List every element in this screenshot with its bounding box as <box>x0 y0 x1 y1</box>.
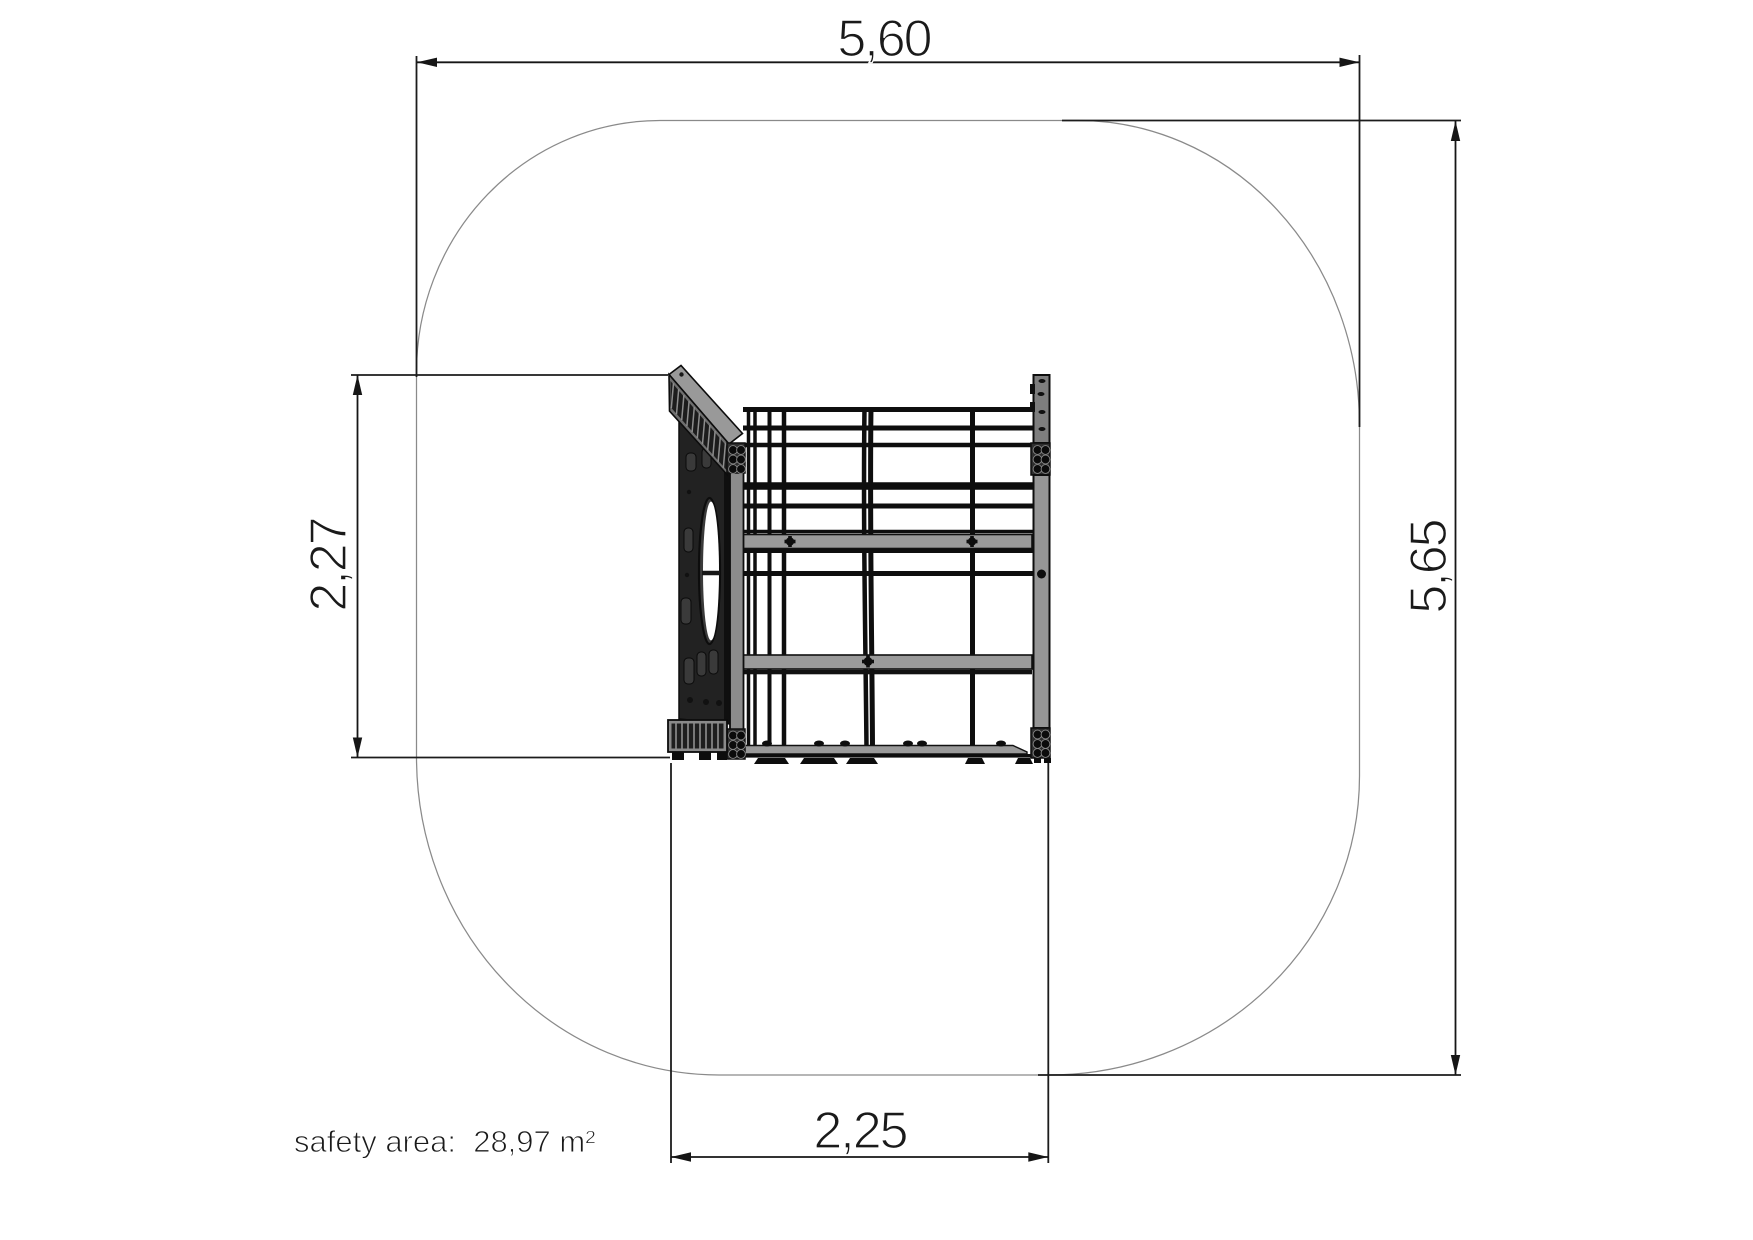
svg-text:5,65: 5,65 <box>1400 520 1458 613</box>
svg-text:safety area: 28,97 m²: safety area: 28,97 m² <box>294 1124 596 1159</box>
svg-text:2,27: 2,27 <box>300 518 358 611</box>
svg-text:5,60: 5,60 <box>837 10 930 68</box>
svg-text:2,25: 2,25 <box>813 1102 906 1160</box>
